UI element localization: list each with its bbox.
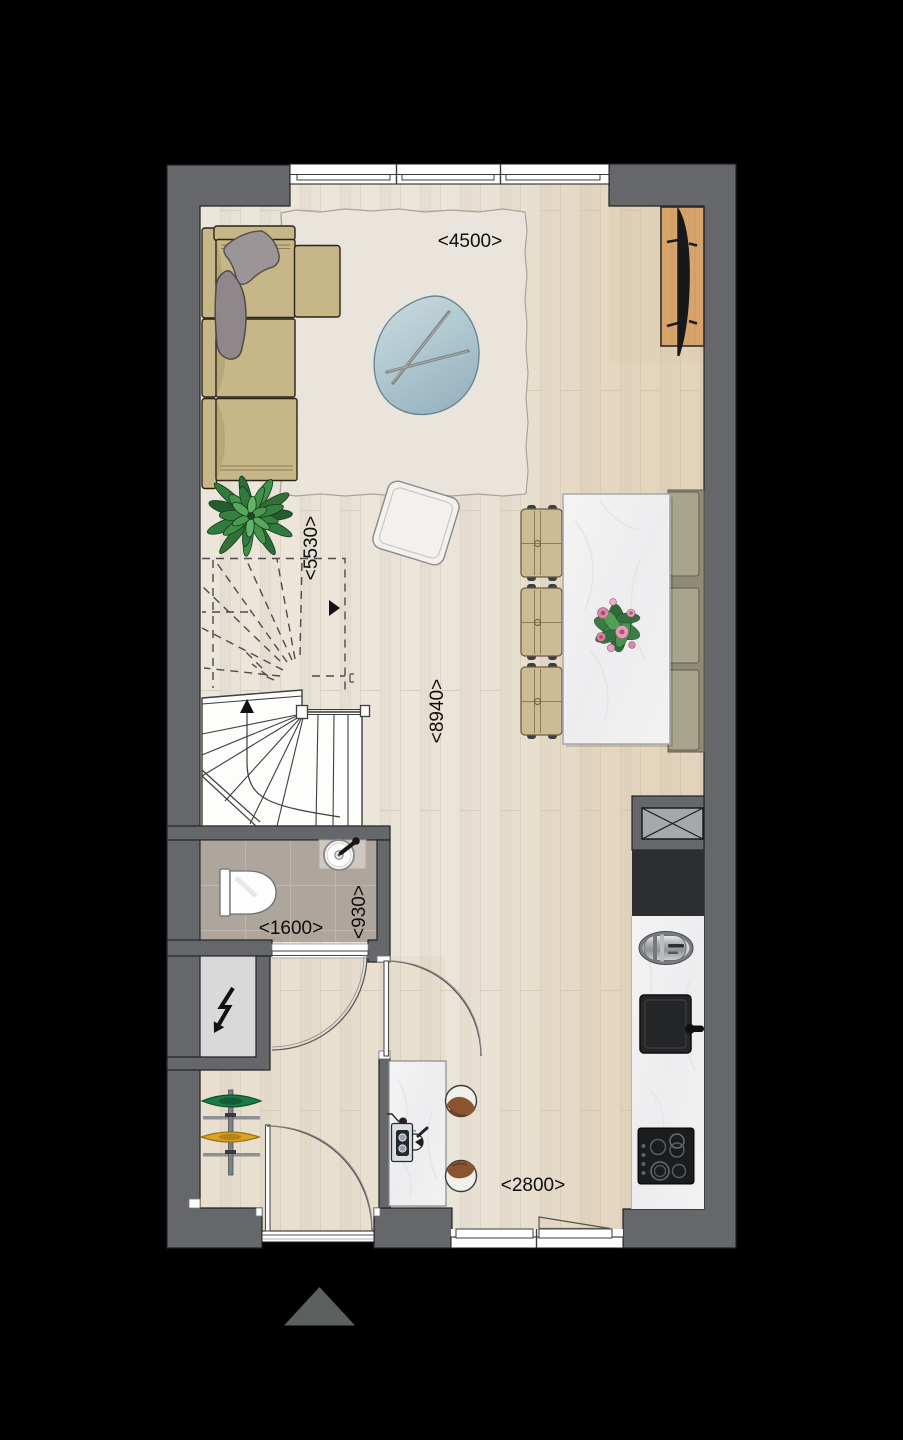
svg-text:<2800>: <2800> xyxy=(501,1175,565,1196)
svg-text:<4500>: <4500> xyxy=(438,231,502,252)
svg-text:<5530>: <5530> xyxy=(301,516,322,580)
svg-text:<8940>: <8940> xyxy=(427,679,448,743)
svg-text:<1600>: <1600> xyxy=(259,918,323,939)
svg-text:<930>: <930> xyxy=(349,885,370,939)
